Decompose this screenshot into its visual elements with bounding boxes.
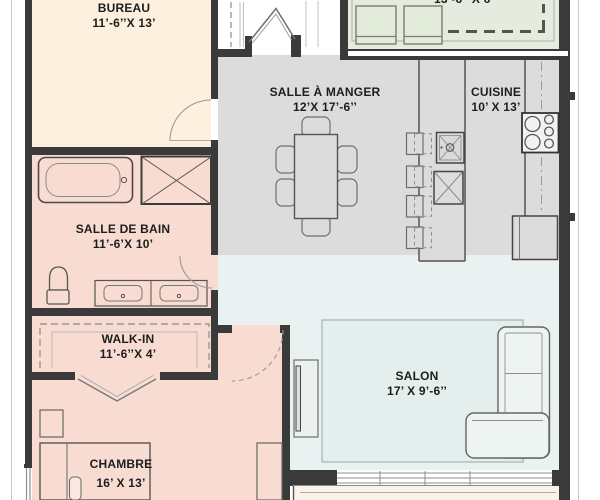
wall [31,372,75,380]
label-walk-in: WALK-IN 11’-6’’X 4’ [100,333,156,361]
wall-tick [570,92,575,221]
room-name: SALLE À MANGER [270,86,381,99]
lot-line-right [578,0,579,500]
wall-cavity [348,51,568,56]
wall [211,49,252,57]
wall [340,56,568,60]
room-dims: 17’ X 9’-6’’ [387,385,447,398]
room-name: CUISINE [471,86,521,99]
salon-window [337,470,552,486]
room-dims: 11’-6’’X 4’ [100,348,156,361]
room-name: WALK-IN [100,333,156,346]
wall [160,372,218,380]
wall [211,155,218,255]
room-name: BUREAU [92,2,155,15]
wall [25,0,32,467]
kitchen-island-floor [419,57,465,262]
lot-line-left [11,0,12,500]
room-dims: 11’-6’’X 13’ [92,17,155,30]
label-salon: SALON 17’ X 9’-6’’ [387,370,447,398]
label-balcon: 13’-6’’ X 6’ [434,0,494,6]
room-terrasse [293,484,563,500]
wall [218,325,232,333]
room-name: SALLE DE BAIN [76,223,171,236]
room-chambre-entry [218,325,282,380]
room-name: SALON [387,370,447,383]
room-dims: 16’ X 13’ [90,477,153,490]
wall [31,308,218,316]
wall [291,35,301,57]
wall [288,470,337,486]
label-salle-de-bain: SALLE DE BAIN 11’-6’X 10’ [76,223,171,251]
room-balcon [346,0,560,50]
floor-plan: BUREAU 11’-6’’X 13’ SALLE À MANGER 12’X … [0,0,600,500]
wall [31,147,218,155]
chambre-window [24,468,32,500]
label-chambre: CHAMBRE 16’ X 13’ [90,458,153,490]
room-dims: 12’X 17’-6’’ [270,101,381,114]
room-chambre [31,374,282,500]
wall [245,36,252,50]
label-bureau: BUREAU 11’-6’’X 13’ [92,2,155,30]
door-opening [211,99,218,140]
label-salle-a-manger: SALLE À MANGER 12’X 17’-6’’ [270,86,381,114]
label-cuisine: CUISINE 10’ X 13’ [471,86,521,114]
room-name: CHAMBRE [90,458,153,471]
wall [559,0,570,500]
wall [552,470,568,486]
bath-door-threshold [211,255,218,290]
wall [211,316,218,380]
room-dims: 11’-6’X 10’ [76,238,171,251]
room-dims: 10’ X 13’ [471,101,521,114]
room-dims: 13’-6’’ X 6’ [434,0,494,6]
